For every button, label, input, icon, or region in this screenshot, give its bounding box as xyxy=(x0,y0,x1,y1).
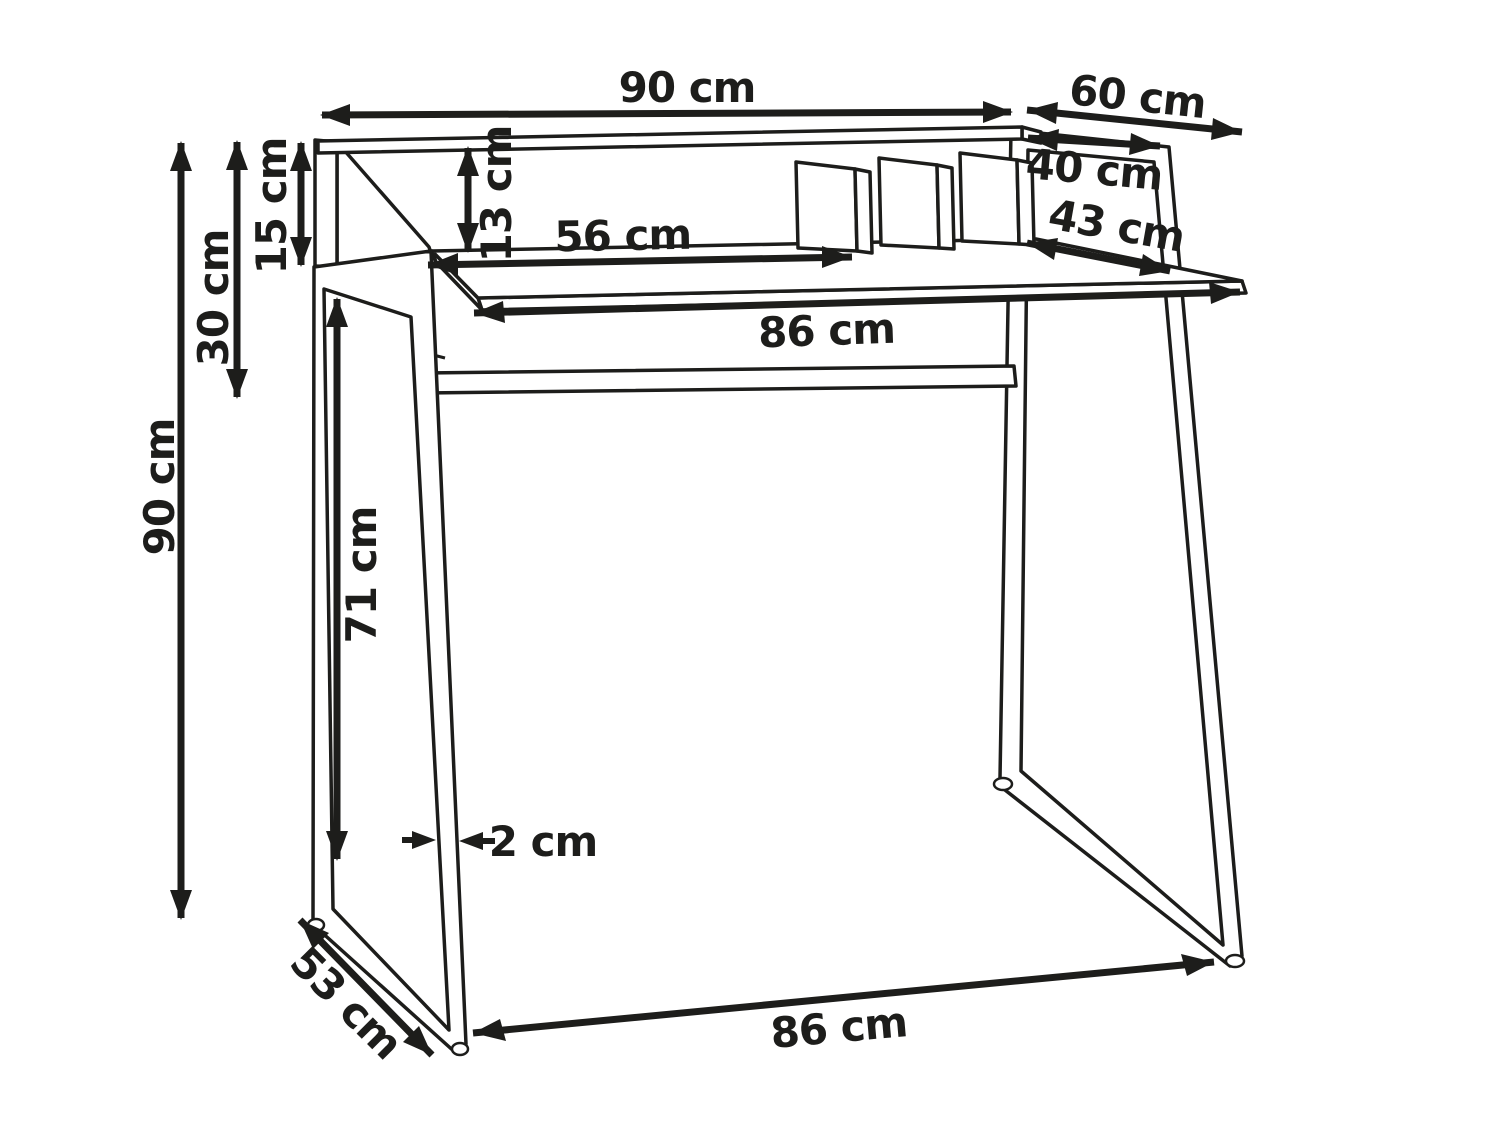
divider-3 xyxy=(960,153,1034,245)
dim-label-back-height: 30 cm xyxy=(189,230,238,367)
dim-back-height: 30 cm xyxy=(189,140,248,399)
dim-label-top-width: 90 cm xyxy=(619,63,756,112)
divider-2-side xyxy=(937,165,954,249)
divider-1-side xyxy=(855,169,872,253)
dim-panel-height: 15 cm xyxy=(247,138,312,275)
dim-label-inner-width: 56 cm xyxy=(554,210,692,261)
left-shelf-panel-face xyxy=(315,140,337,267)
dim-total-height: 90 cm xyxy=(135,141,192,920)
right-rear-foot-pad xyxy=(994,778,1012,790)
dim-label-base-width: 86 cm xyxy=(768,997,908,1058)
dim-shelf-depth: 40 cm xyxy=(1024,129,1164,200)
shelf-board xyxy=(318,127,1041,153)
left-rear-foot-pad xyxy=(452,1043,468,1055)
shelf-board-face xyxy=(318,127,1022,153)
dim-top-width: 90 cm xyxy=(320,63,1013,126)
divider-2 xyxy=(879,158,954,249)
left-shelf-panel-side xyxy=(337,142,433,267)
dim-label-divider-height: 13 cm xyxy=(472,126,521,263)
dim-label-total-height: 90 cm xyxy=(135,419,184,556)
left-shelf-panel xyxy=(315,140,433,267)
dim-total-depth: 60 cm xyxy=(1027,65,1242,140)
divider-1-face xyxy=(796,162,857,251)
divider-2-face xyxy=(879,158,939,248)
desk-dimension-diagram: 90 cm 60 cm 40 cm 43 cm 56 cm 13 cm xyxy=(0,0,1500,1125)
dim-base-width: 86 cm xyxy=(473,954,1214,1058)
divider-1 xyxy=(796,162,872,253)
divider-3-face xyxy=(960,153,1019,244)
dim-label-frame-thickness: 2 cm xyxy=(489,817,598,866)
dim-label-leg-height: 71 cm xyxy=(337,507,386,644)
dim-label-panel-height: 15 cm xyxy=(247,138,296,275)
right-front-foot-pad xyxy=(1226,955,1244,967)
dim-label-desktop-width: 86 cm xyxy=(757,304,895,358)
